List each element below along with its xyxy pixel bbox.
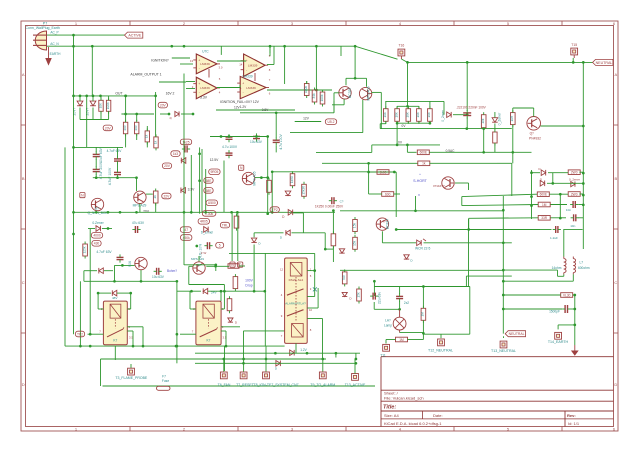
svg-text:T7_RESET: T7_RESET <box>236 383 255 387</box>
svg-text:3.0: 3.0 <box>219 66 223 70</box>
svg-text:600E: 600E <box>540 193 547 197</box>
svg-text:1.2uF: 1.2uF <box>550 236 558 240</box>
svg-text:Id: 1/1: Id: 1/1 <box>568 421 580 426</box>
svg-text:1k: 1k <box>153 140 157 144</box>
svg-text:-: - <box>246 68 247 72</box>
svg-text:C?: C? <box>340 199 344 203</box>
svg-text:B: B <box>614 176 617 181</box>
svg-text:4.7u 100V: 4.7u 100V <box>222 145 238 149</box>
svg-text:File: Vulcan.kicad_sch: File: Vulcan.kicad_sch <box>384 396 424 401</box>
svg-text:10u 63V: 10u 63V <box>250 140 263 144</box>
svg-text:1.2V: 1.2V <box>300 348 307 352</box>
svg-text:BC337: BC337 <box>348 88 352 98</box>
svg-text:ALARM_OUTPUT 1: ALARM_OUTPUT 1 <box>130 73 161 77</box>
svg-text:+: + <box>198 58 200 62</box>
svg-text:48V: 48V <box>112 296 118 300</box>
svg-text:2W0: 2W0 <box>571 192 578 196</box>
svg-text:2W0: 2W0 <box>571 171 578 175</box>
svg-text:Fuse: Fuse <box>162 379 169 383</box>
svg-text:Q?: Q? <box>530 132 534 136</box>
svg-text:68E: 68E <box>206 179 213 183</box>
svg-text:1k50: 1k50 <box>290 176 294 183</box>
svg-text:PN43??: PN43?? <box>433 184 444 188</box>
svg-text:LM339: LM339 <box>246 86 256 90</box>
svg-text:5: 5 <box>219 244 221 248</box>
svg-text:15k: 15k <box>352 223 356 229</box>
svg-text:10k: 10k <box>406 112 410 118</box>
svg-text:Lamp: Lamp <box>384 323 392 327</box>
svg-text:-: - <box>199 91 200 95</box>
svg-text:1K250 0.00nF 250V: 1K250 0.00nF 250V <box>315 204 344 208</box>
svg-text:Bohm?: Bohm? <box>167 269 177 273</box>
svg-text:1k: 1k <box>422 162 426 166</box>
svg-text:EARTH: EARTH <box>50 52 61 56</box>
svg-text:4k9: 4k9 <box>123 125 127 130</box>
svg-text:A: A <box>22 72 25 77</box>
svg-text:10k: 10k <box>383 112 387 118</box>
svg-text:Q?: Q? <box>382 219 386 223</box>
svg-text:0.8V: 0.8V <box>262 108 269 112</box>
svg-text:100k: 100k <box>106 102 110 109</box>
svg-text:10k: 10k <box>481 118 485 124</box>
svg-text:.22J100 220nF 100V: .22J100 220nF 100V <box>456 106 486 110</box>
svg-text:4R05: 4R05 <box>200 220 208 224</box>
svg-text:LM339: LM339 <box>200 62 210 66</box>
svg-text:+: + <box>198 82 200 86</box>
svg-text:DS2E-SL2: DS2E-SL2 <box>289 278 304 282</box>
svg-text:D: D <box>614 382 617 387</box>
svg-text:T3_FLAME_PROBE: T3_FLAME_PROBE <box>115 376 148 380</box>
svg-text:T13_NEUTRAL: T13_NEUTRAL <box>491 349 516 353</box>
svg-text:T15: T15 <box>571 43 577 47</box>
svg-text:WCR 22-5: WCR 22-5 <box>415 247 431 251</box>
svg-text:D_Efme!: D_Efme! <box>201 231 214 235</box>
svg-text:20V: 20V <box>105 126 112 130</box>
svg-text:ACTIVE: ACTIVE <box>128 34 142 38</box>
svg-text:0.5AC: 0.5AC <box>446 149 456 153</box>
svg-text:T11: T11 <box>380 354 386 358</box>
svg-text:TP2: TP2 <box>272 208 278 212</box>
svg-text:OUT: OUT <box>115 92 122 96</box>
svg-text:D: D <box>22 382 25 387</box>
svg-text:4): 4) <box>169 116 172 120</box>
svg-text:12V: 12V <box>234 105 241 109</box>
svg-text:Sheet: /: Sheet: / <box>384 390 399 395</box>
svg-text:1k: 1k <box>145 134 149 138</box>
svg-text:IGNITION?: IGNITION? <box>151 59 169 63</box>
svg-text:NEUTRAL: NEUTRAL <box>596 61 613 65</box>
svg-text:4k9: 4k9 <box>134 125 138 130</box>
svg-text:3.3V: 3.3V <box>188 187 196 191</box>
svg-text:10k: 10k <box>394 112 398 118</box>
svg-text:1k25: 1k25 <box>182 140 189 144</box>
svg-text:ALARM-RTLA?: ALARM-RTLA? <box>285 302 306 306</box>
svg-text:430: 430 <box>94 242 100 246</box>
svg-text:12.5V: 12.5V <box>210 158 219 162</box>
svg-text:16V 2: 16V 2 <box>166 92 175 96</box>
svg-text:15k36: 15k36 <box>301 186 305 195</box>
svg-text:34k: 34k <box>312 93 316 99</box>
svg-text:100k: 100k <box>320 94 324 101</box>
svg-text:15k: 15k <box>356 292 360 298</box>
svg-text:9R05: 9R05 <box>210 170 218 174</box>
svg-text:LM339: LM339 <box>242 75 252 79</box>
svg-text:1k3: 1k3 <box>173 152 178 156</box>
svg-text:4.7uF 63V: 4.7uF 63V <box>96 250 112 254</box>
svg-text:MPS A06: MPS A06 <box>366 86 370 100</box>
svg-text:KiCad E.D.A. kicad 6.0.2+dfsg: KiCad E.D.A. kicad 6.0.2+dfsg-1 <box>384 421 442 426</box>
svg-text:22u 63v: 22u 63v <box>377 292 381 304</box>
svg-text:VL30: VL30 <box>563 293 571 297</box>
svg-text:10uF 63V: 10uF 63V <box>99 147 103 162</box>
svg-text:T12_NEUTRAL: T12_NEUTRAL <box>428 348 453 352</box>
svg-text:12: 12 <box>280 267 284 271</box>
svg-text:13: 13 <box>190 59 194 63</box>
svg-text:Date:: Date: <box>433 413 443 418</box>
svg-text:C: C <box>22 280 25 285</box>
svg-text:L7: L7 <box>580 261 584 265</box>
svg-text:D: D <box>538 167 540 171</box>
svg-text:T6_FAN: T6_FAN <box>218 383 231 387</box>
svg-text:K7: K7 <box>113 339 117 343</box>
svg-text:2x2: 2x2 <box>404 301 409 305</box>
svg-text:Conn_WallPlug_Earth: Conn_WallPlug_Earth <box>26 26 60 30</box>
svg-text:U7C: U7C <box>202 50 209 54</box>
svg-text:NEUTRAL: NEUTRAL <box>509 332 525 336</box>
svg-text:Drop: Drop <box>245 284 252 288</box>
svg-text:20V: 20V <box>164 164 171 168</box>
svg-text:T16: T16 <box>398 44 404 48</box>
svg-text:U500: U500 <box>208 201 216 205</box>
svg-text:MPS A29: MPS A29 <box>191 257 204 261</box>
svg-text:T14_EARTH: T14_EARTH <box>548 340 569 344</box>
svg-text:20V?: 20V? <box>86 107 90 115</box>
svg-text:33R: 33R <box>541 216 548 220</box>
svg-text:14ohm: 14ohm <box>552 266 562 270</box>
svg-text:0_Zener: 0_Zener <box>498 112 502 125</box>
svg-text:4.7uF 100V: 4.7uF 100V <box>108 167 112 185</box>
svg-text:3.3V: 3.3V <box>200 96 208 100</box>
svg-text:22V: 22V <box>163 194 170 198</box>
svg-text:T13_ACTIVE: T13_ACTIVE <box>345 383 366 387</box>
svg-text:1.2V: 1.2V <box>240 105 247 109</box>
svg-text:LM339: LM339 <box>248 63 258 67</box>
svg-text:PN4932: PN4932 <box>529 137 541 141</box>
svg-text:T8_IGN-TE7_SYSTEM_CN7: T8_IGN-TE7_SYSTEM_CN7 <box>253 383 298 387</box>
svg-text:600: 600 <box>385 192 391 196</box>
svg-text:1k00: 1k00 <box>380 170 387 174</box>
svg-text:10k: 10k <box>98 103 102 109</box>
svg-text:LM339: LM339 <box>200 86 210 90</box>
svg-text:S06: S06 <box>128 261 132 267</box>
svg-text:100V: 100V <box>245 279 254 283</box>
svg-text:15k: 15k <box>352 240 356 246</box>
svg-text:AC_P: AC_P <box>50 31 58 35</box>
svg-text:10k: 10k <box>427 112 431 118</box>
svg-text:MPS A05: MPS A05 <box>252 171 256 185</box>
svg-text:B: B <box>22 176 25 181</box>
svg-text:125k: 125k <box>82 246 86 253</box>
svg-text:20V: 20V <box>160 104 167 108</box>
svg-text:20V: 20V <box>143 210 150 214</box>
svg-text:14: 14 <box>239 63 243 67</box>
svg-text:10R: 10R <box>510 115 514 122</box>
svg-text:AC_N: AC_N <box>50 42 59 46</box>
svg-text:U5.2: U5.2 <box>328 120 335 124</box>
svg-text:2 W: 2 W <box>201 251 207 255</box>
svg-text:1k: 1k <box>153 195 157 199</box>
svg-text:68E: 68E <box>206 189 213 193</box>
svg-text:TP2: TP2 <box>77 332 83 336</box>
svg-text:1M: 1M <box>542 203 547 207</box>
svg-text:1500pF: 1500pF <box>549 310 560 314</box>
svg-text:4.7uF 63V: 4.7uF 63V <box>107 149 123 153</box>
svg-text:10n: 10n <box>566 208 571 212</box>
svg-text:Title:: Title: <box>383 405 396 411</box>
svg-text:-: - <box>243 90 244 94</box>
svg-text:10u 63V: 10u 63V <box>152 275 165 279</box>
svg-text:LA?: LA? <box>385 319 391 323</box>
svg-text:Rev:: Rev: <box>567 413 576 418</box>
svg-text:600E: 600E <box>420 151 427 155</box>
svg-text:1M: 1M <box>421 312 425 317</box>
svg-text:4000: 4000 <box>93 234 101 238</box>
svg-text:Size: A4: Size: A4 <box>384 413 399 418</box>
svg-text:K7: K7 <box>207 339 211 343</box>
svg-text:10n: 10n <box>570 224 575 228</box>
svg-text:Q?: Q? <box>95 207 99 211</box>
svg-text:IGNITION_FAIL=0V? 12V: IGNITION_FAIL=0V? 12V <box>220 100 260 104</box>
svg-text:1M: 1M <box>399 338 404 342</box>
svg-text:D: D <box>540 178 542 182</box>
svg-text:4.7uF 200V: 4.7uF 200V <box>99 161 103 179</box>
svg-text:S-HORT: S-HORT <box>413 179 428 183</box>
svg-text:12V: 12V <box>303 116 310 120</box>
svg-text:10: 10 <box>309 308 313 312</box>
svg-text:100k: 100k <box>304 86 308 93</box>
svg-text:7k5: 7k5 <box>342 275 346 280</box>
svg-text:F7: F7 <box>162 375 166 379</box>
svg-text:+: + <box>242 82 244 86</box>
svg-text:TRL: TRL <box>222 224 228 228</box>
svg-text:4.7u 100V: 4.7u 100V <box>279 134 283 150</box>
svg-text:A: A <box>614 72 617 77</box>
svg-text:10k: 10k <box>416 112 420 118</box>
svg-text:600ohm: 600ohm <box>578 266 590 270</box>
svg-text:Q_NPN_BCE: Q_NPN_BCE <box>88 211 109 215</box>
svg-text:T9_TO_ALARM: T9_TO_ALARM <box>310 383 335 387</box>
svg-text:1.30k: 1.30k <box>205 212 213 216</box>
svg-text:C: C <box>614 280 617 285</box>
svg-text:0.Zener: 0.Zener <box>92 221 104 225</box>
svg-text:v: v <box>418 193 420 197</box>
svg-text:-: - <box>199 66 200 70</box>
svg-text:47u 63V: 47u 63V <box>132 221 145 225</box>
